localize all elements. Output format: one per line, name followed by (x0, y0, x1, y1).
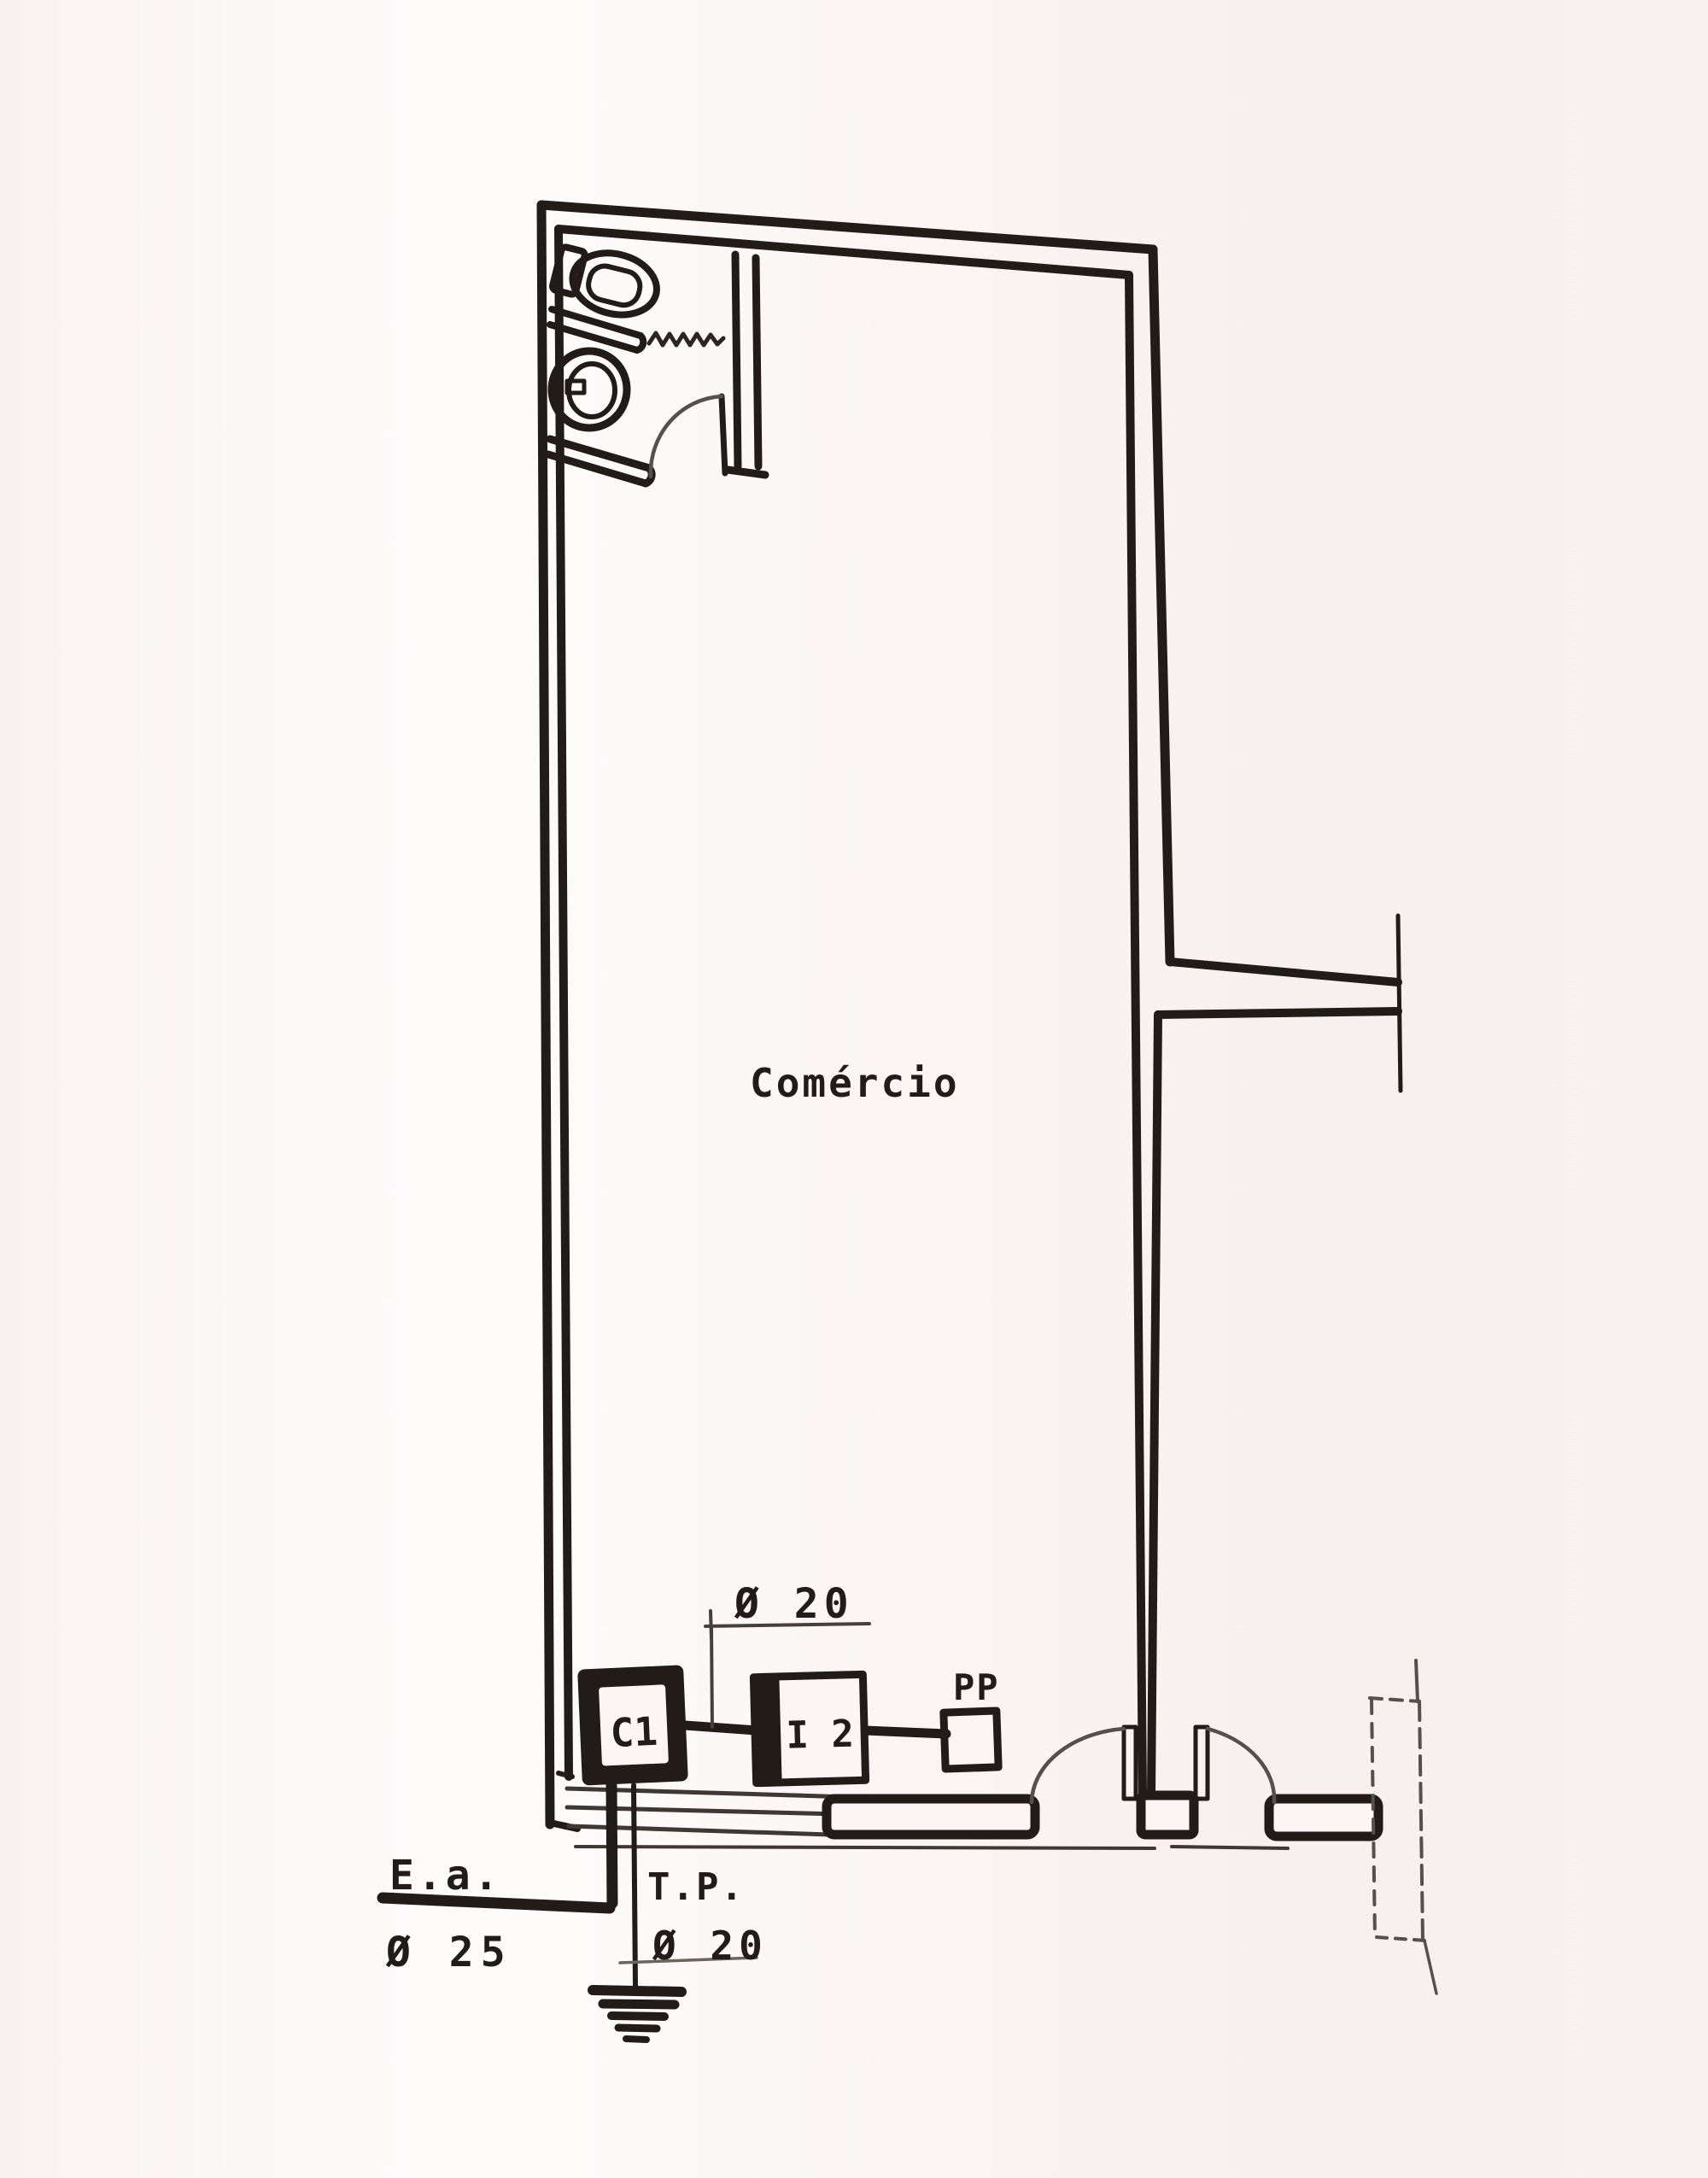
bottom-wall-left-bar (827, 1799, 1035, 1835)
pull-point-label: PP (953, 1666, 1000, 1708)
ground-wire-label: T.P. (647, 1865, 745, 1909)
service-entrance-label: E.a. (389, 1852, 502, 1900)
conduit-vertical-line (611, 1785, 612, 1903)
branch-wall-bottom-line (1158, 1011, 1398, 1015)
floor-plan-sheet: C1 I 2 PP Comércio Ø 2 (0, 0, 1708, 2178)
projection-stub-line-top (1416, 1660, 1418, 1701)
dimension-leader-line (711, 1626, 712, 1727)
switch-box-label: I 2 (786, 1713, 855, 1758)
meter-box-label: C1 (610, 1708, 659, 1756)
ground-bar-2 (603, 2004, 675, 2005)
conduit-dia-label: Ø 20 (734, 1580, 854, 1628)
ground-bar-1 (593, 1990, 681, 1992)
ground-wire-dia-label: Ø 20 (652, 1923, 768, 1969)
right-door-threshold-line (1172, 1847, 1288, 1848)
bathroom-door-leaf (722, 396, 725, 473)
left-wall-inner-cap (559, 1773, 572, 1777)
bathroom-partition-foot (728, 470, 765, 475)
floor-plan-drawing: C1 I 2 PP Comércio Ø 2 (0, 0, 1708, 2178)
switch-box-left-bar (753, 1677, 781, 1783)
storefront-threshold-line (576, 1847, 1155, 1848)
wire-i2-to-pp (864, 1730, 946, 1734)
room-label: Comércio (750, 1060, 960, 1106)
ground-bar-4 (618, 2028, 657, 2029)
ground-bar-5 (626, 2039, 646, 2040)
meter-box-c1: C1 (577, 1665, 688, 1785)
bathroom-partition-right-line (756, 258, 758, 466)
wire-c1-to-i2 (685, 1725, 757, 1730)
switch-box-i2: I 2 (753, 1674, 865, 1783)
bottom-wall-right-bar (1269, 1799, 1378, 1836)
center-wall-post (1141, 1795, 1194, 1835)
branch-wall-end-cap (1398, 916, 1401, 1091)
ground-bar-3 (611, 2016, 664, 2017)
ground-wire-line (634, 1785, 635, 1987)
bathroom-partition-left-line (735, 255, 738, 466)
service-entrance-dia-label: Ø 25 (385, 1929, 512, 1976)
